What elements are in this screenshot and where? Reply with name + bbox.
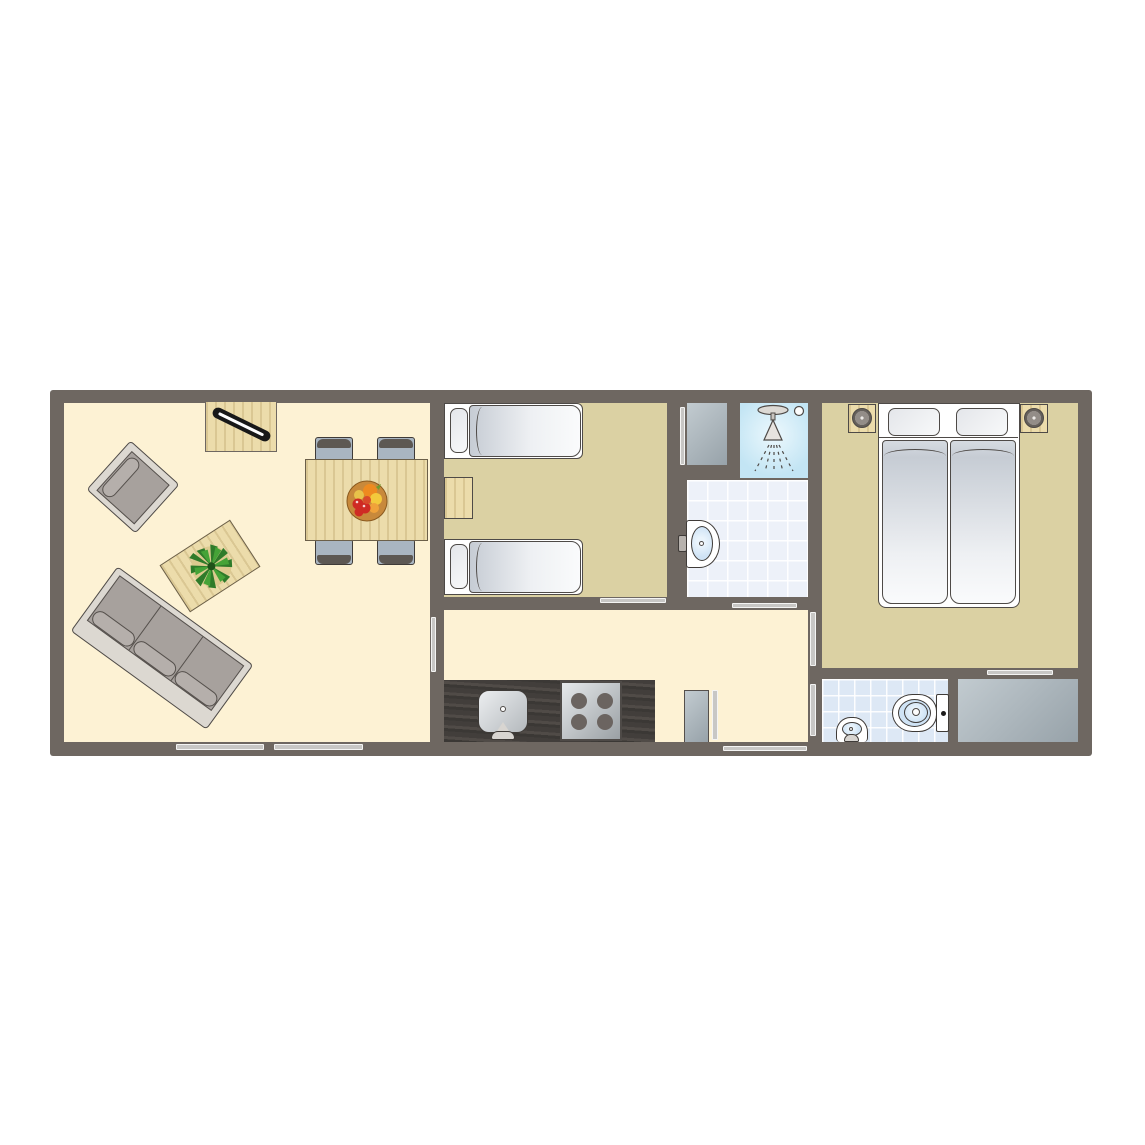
door-hall-to-toilet bbox=[810, 684, 816, 736]
dining-chair-back bbox=[379, 439, 413, 448]
shower-drain-icon bbox=[795, 407, 804, 416]
lamp-icon bbox=[852, 408, 872, 428]
toilet-drain bbox=[912, 708, 920, 716]
door-living-to-hall bbox=[431, 617, 436, 672]
toilet-basin-tap-icon bbox=[844, 734, 859, 742]
sink-tap-base bbox=[491, 731, 515, 740]
lamp-icon bbox=[1024, 408, 1044, 428]
dining-table bbox=[305, 459, 428, 541]
door-bedroom-to-storage bbox=[987, 670, 1053, 675]
toilet-bowl bbox=[892, 694, 937, 732]
dining-chair-back bbox=[379, 555, 413, 564]
sink-drain bbox=[500, 706, 506, 712]
washbasin-drain bbox=[849, 727, 853, 731]
bed-pillow bbox=[888, 408, 940, 436]
twin-nightstand bbox=[444, 477, 473, 519]
dining-chair-back bbox=[317, 439, 351, 448]
toilet-cistern bbox=[936, 694, 949, 732]
window-living-room-left bbox=[176, 744, 264, 750]
front-door bbox=[723, 746, 807, 751]
stove-burner bbox=[571, 693, 587, 709]
tv-screen-line bbox=[218, 412, 264, 437]
washbasin-tap-icon bbox=[678, 535, 687, 552]
storage-room-floor bbox=[958, 679, 1078, 742]
washbasin-drain bbox=[699, 541, 704, 546]
door-hall-closet bbox=[712, 690, 718, 740]
fruit-bowl-icon bbox=[345, 479, 389, 523]
window-living-room-right bbox=[274, 744, 363, 750]
kitchen-sink bbox=[478, 690, 528, 733]
bed-pillow bbox=[450, 408, 468, 453]
hall-closet bbox=[684, 690, 709, 742]
floor-plan-canvas bbox=[0, 0, 1145, 1145]
floor-plan bbox=[50, 390, 1092, 756]
cistern-button bbox=[941, 711, 946, 716]
shower-head-icon bbox=[740, 403, 808, 478]
kitchen-counter bbox=[444, 680, 655, 742]
tv-icon bbox=[211, 406, 272, 444]
sink-tap-icon bbox=[497, 722, 509, 731]
bed-mattress bbox=[469, 541, 581, 593]
stove bbox=[560, 681, 622, 741]
bathroom-closet bbox=[687, 403, 727, 465]
stove-burner bbox=[571, 714, 587, 730]
duvet-fold-line bbox=[952, 449, 1014, 463]
bed-pillow bbox=[956, 408, 1008, 436]
bed-mattress bbox=[469, 405, 581, 457]
door-twin-bedroom-closet bbox=[680, 407, 685, 465]
door-hall-to-double-bedroom bbox=[810, 612, 816, 666]
shower-area bbox=[740, 403, 808, 478]
stove-burner bbox=[597, 693, 613, 709]
bed-mattress bbox=[882, 440, 948, 604]
duvet-fold-line bbox=[476, 543, 488, 591]
dining-chair-back bbox=[317, 555, 351, 564]
duvet-fold-line bbox=[476, 407, 488, 455]
bed-mattress bbox=[950, 440, 1016, 604]
dining-chair bbox=[377, 539, 415, 565]
tv-cabinet bbox=[205, 401, 277, 452]
door-hall-to-twin-bedroom bbox=[600, 598, 666, 603]
duvet-fold-line bbox=[884, 449, 946, 463]
stove-burner bbox=[597, 714, 613, 730]
door-hall-to-bathroom bbox=[732, 603, 797, 608]
dining-chair bbox=[315, 539, 353, 565]
bed-head-line bbox=[879, 437, 1018, 438]
bed-pillow bbox=[450, 544, 468, 589]
